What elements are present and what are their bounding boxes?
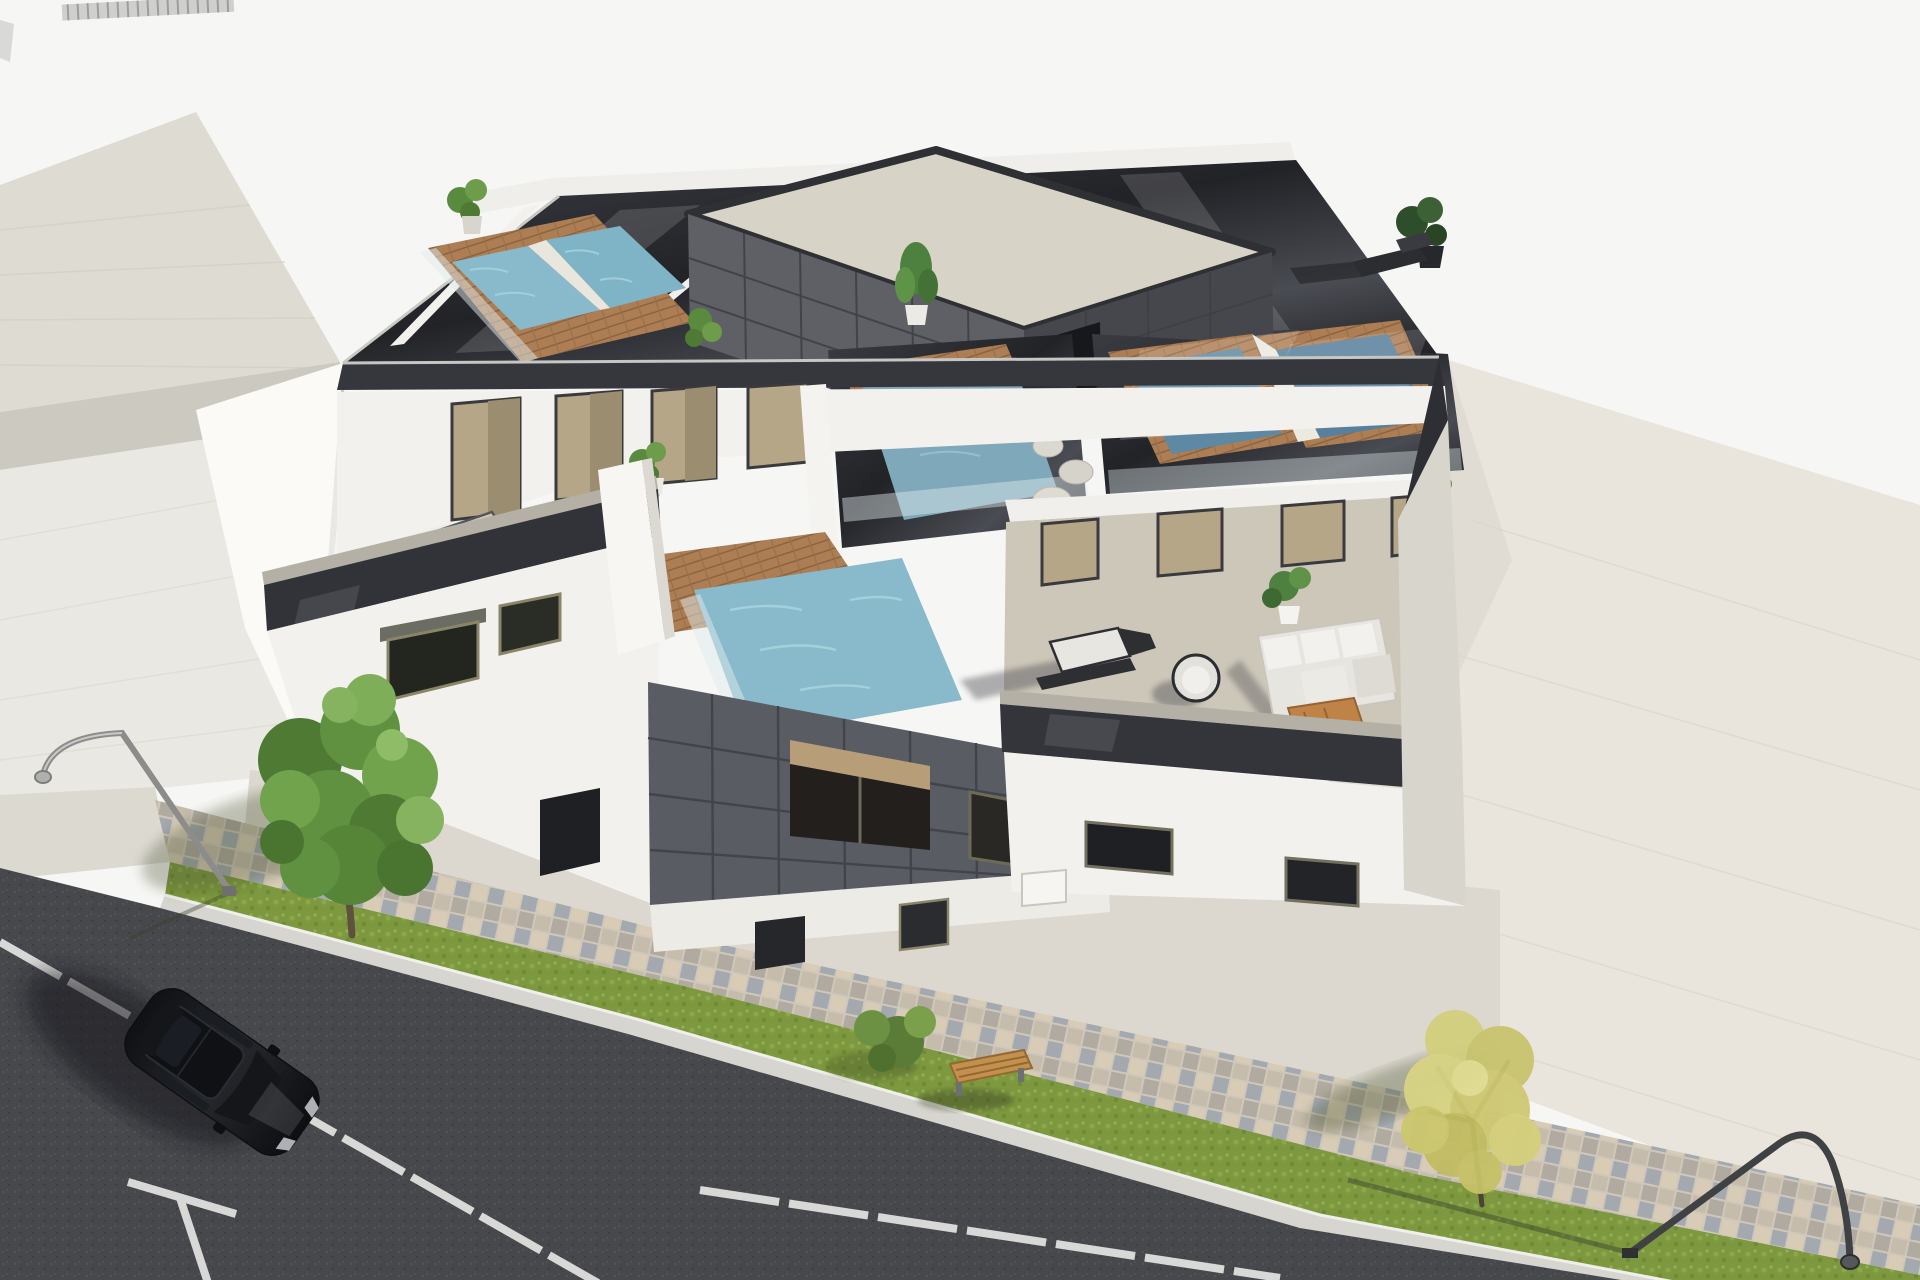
plant-pot (1278, 606, 1300, 624)
bench-shadow (918, 1089, 1014, 1111)
entrance-door (540, 788, 600, 876)
lamp-base (222, 886, 236, 896)
utility-box (1022, 870, 1066, 906)
lamp-head (1841, 1255, 1859, 1269)
lamp-head (35, 771, 51, 783)
door (900, 899, 948, 950)
plant-pot (462, 216, 482, 234)
architectural-rendering-stage (0, 0, 1920, 1280)
aerial-render (0, 0, 1920, 1280)
glass-door (452, 398, 520, 520)
lamp-base (1622, 1248, 1638, 1258)
glass-door (652, 386, 716, 484)
pouf (1059, 460, 1093, 484)
window (1086, 822, 1172, 874)
door (755, 916, 805, 970)
window (1286, 858, 1358, 906)
plant-pot (905, 305, 928, 325)
glass-door (748, 383, 808, 468)
